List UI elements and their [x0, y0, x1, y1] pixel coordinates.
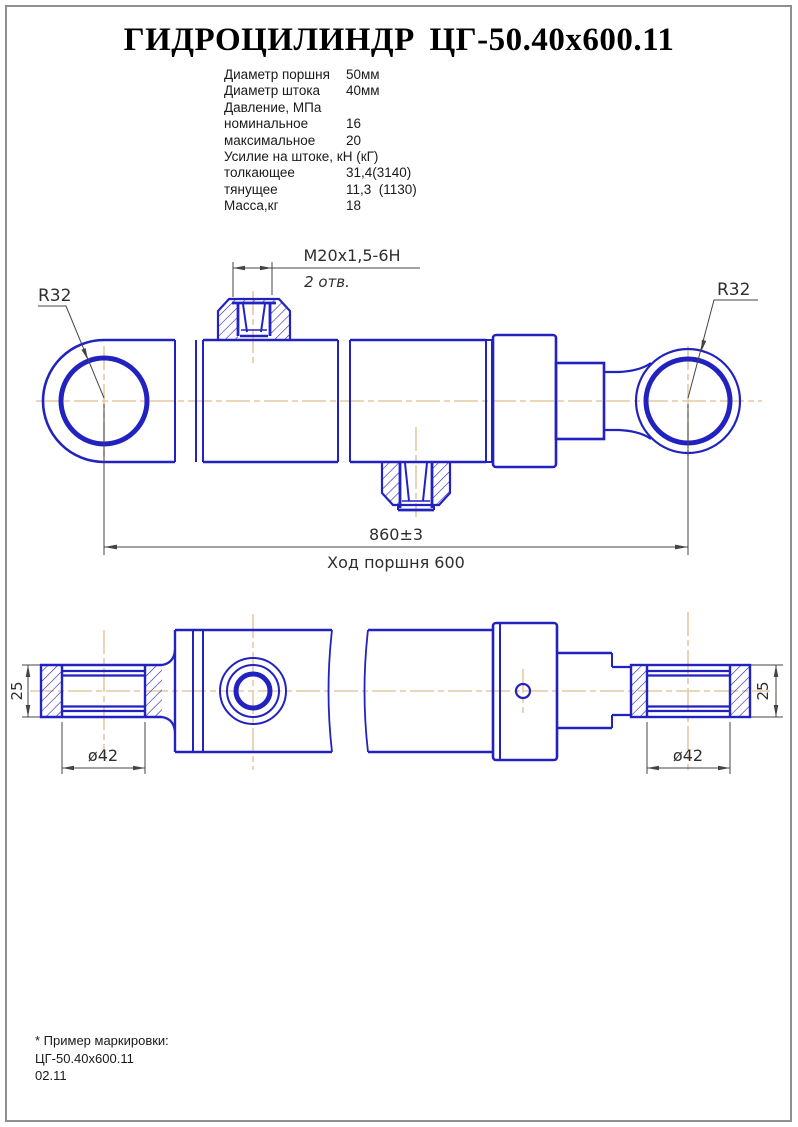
radius-left-label: R32	[38, 286, 71, 306]
plan-view: 25 ø42 ø42 25	[8, 612, 783, 774]
thread-callout: M20x1,5-6H 2 отв.	[233, 246, 420, 297]
marking-note-line1: * Пример маркировки:	[35, 1032, 169, 1050]
eye-width-left-label: 25	[8, 681, 26, 700]
plan-view-centerlines	[30, 612, 770, 770]
stroke-dim-label: Ход поршня 600	[327, 553, 465, 572]
length-dim-label: 860±3	[369, 525, 423, 544]
eye-dia-left-label: ø42	[88, 746, 118, 765]
thread-holes-label: 2 отв.	[304, 273, 350, 291]
radius-right-label: R32	[717, 280, 750, 300]
hydraulic-cylinder-drawing: R32 R32 M20x1,5-6H 2 отв. 860±3 Ход порш…	[0, 0, 798, 1127]
eye-width-right-label: 25	[754, 681, 772, 700]
eye-width-dim-right: 25	[751, 665, 783, 717]
marking-note-line3: 02.11	[35, 1067, 169, 1085]
top-port-boss	[218, 299, 290, 340]
eye-dia-right-label: ø42	[673, 746, 703, 765]
marking-note-line2: ЦГ-50.40х600.11	[35, 1050, 169, 1068]
thread-callout-label: M20x1,5-6H	[303, 246, 400, 265]
side-view: R32 R32 M20x1,5-6H 2 отв. 860±3 Ход порш…	[36, 246, 762, 572]
marking-note: * Пример маркировки: ЦГ-50.40х600.11 02.…	[35, 1032, 169, 1085]
